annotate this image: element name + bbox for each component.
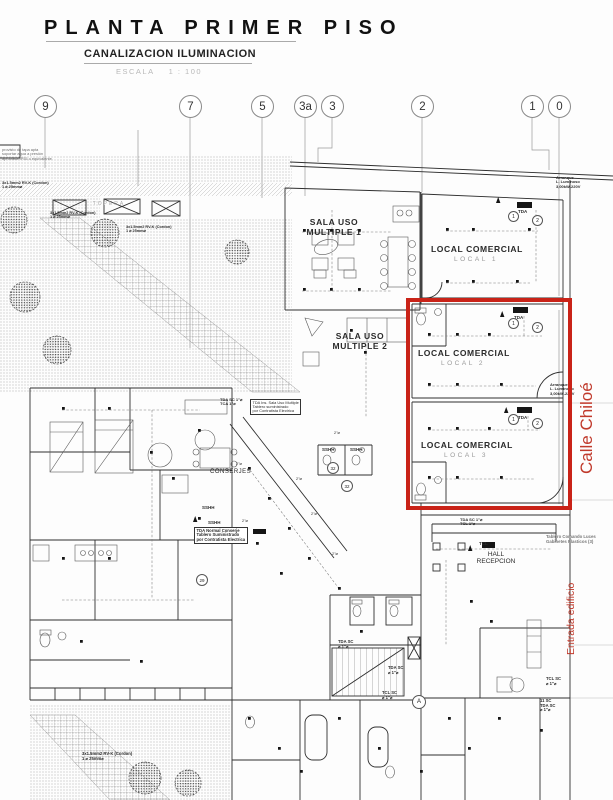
garden-hatch xyxy=(0,155,300,800)
annotation-tcl-sc-center: TCL SC ⌀ 1"⌀ xyxy=(382,691,397,700)
annotation-dia2-6: 2"⌀ xyxy=(332,552,338,556)
scale-ratio: 1 : 100 xyxy=(169,67,202,76)
room-label-sshh-1: SSHH xyxy=(202,505,215,510)
floor-plan-sheet: PLANTA PRIMER PISO CANALIZACION ILUMINAC… xyxy=(0,0,613,800)
subtitle-underline xyxy=(84,63,252,64)
scale-label: ESCALA xyxy=(116,67,155,76)
badge-32-b: 32 xyxy=(341,480,353,492)
annotation-tda-local1: TDA xyxy=(518,209,527,214)
sheet-subtitle: CANALIZACION ILUMINACION xyxy=(84,48,256,60)
annotation-cordon-1: 3x1.5mm2 RV-K (Cordon) 1 ⌀ 25mm⌀ xyxy=(50,211,96,220)
annotation-arranque-luminoso-top: Arranque L. Luminoso 3,00kW-220V xyxy=(556,176,580,189)
badge-circuit-1-local1: 1 xyxy=(508,211,519,222)
badge-section-a: A xyxy=(412,695,426,709)
annotation-cordon-3: 3x1.5mm2 RV-K (Cordon) 1 ⌀ 25mm⌀ xyxy=(82,752,132,761)
grid-bubble-3a: 3a xyxy=(294,95,317,118)
room-label-conserjes: CONSERJES xyxy=(210,469,251,476)
annotation-tda-sala-uso: TDA Ins. Sala Uso Multiple Tablero sumin… xyxy=(250,399,301,415)
title-underline xyxy=(46,41,296,42)
annotation-cordon-top: 3x1.5mm2 RV-K (Cordon) 1 ⌀ 25mm⌀ xyxy=(2,181,49,190)
grid-bubble-7: 7 xyxy=(179,95,202,118)
annotation-dia2-4: 2"⌀ xyxy=(334,431,340,435)
annotation-tablero-comando: Tablero Comando Luces Gabinetes Plastico… xyxy=(546,535,596,545)
badge-32-a: 32 xyxy=(327,462,339,474)
annotation-tda-sc-right: 11 SC TDA SC ⌀ 1"⌀ xyxy=(540,699,555,713)
label-topera: TOPERA xyxy=(88,202,130,208)
badge-29: 29 xyxy=(196,574,208,586)
annotation-caja-ip55: provisto de tapa apta soportar agua a pr… xyxy=(2,148,53,161)
annotation-dia2-1: 2"⌀ xyxy=(236,462,242,466)
room-label-sshh-2: SSHH xyxy=(208,520,221,525)
grid-bubble-1: 1 xyxy=(521,95,544,118)
annotation-tda-sc-tcl: TDA SC 1"⌀ TCL 1"⌀ xyxy=(460,518,482,527)
sheet-title: PLANTA PRIMER PISO xyxy=(44,17,404,40)
annotation-cordon-2: 3x1.5mm2 RV-K (Cordon) 1 ⌀ 25mm⌀ xyxy=(126,225,172,234)
grid-bubble-0: 0 xyxy=(548,95,571,118)
highlight-rectangle xyxy=(406,298,572,510)
annotation-tcl: TCL xyxy=(479,541,488,546)
room-label-sala-uso-multiple-2: SALA USO MULTIPLE 2 xyxy=(325,331,395,351)
grid-bubble-5: 5 xyxy=(251,95,274,118)
grid-bubble-3: 3 xyxy=(321,95,344,118)
annotation-dia2-2: 2"⌀ xyxy=(296,477,302,481)
room-label-local-comercial-1: LOCAL COMERCIAL LOCAL 1 xyxy=(431,244,521,263)
annotation-tda-sc-center: TDA SC ⌀ 1"⌀ xyxy=(388,666,403,675)
room-label-sala-uso-multiple-1: SALA USO MULTIPLE 1 xyxy=(294,217,374,237)
annotation-tcl-sc-right: TCL SC ⌀ 1"⌀ xyxy=(546,677,561,686)
annotation-tda-sc-stairs: TDA SC ⌀ 1"⌀ xyxy=(338,640,353,649)
grid-bubble-9: 9 xyxy=(34,95,57,118)
grid-bubble-2: 2 xyxy=(411,95,434,118)
annotation-tda-sc-tca: TDA SC 1"⌀ TCA 1"⌀ xyxy=(220,398,242,407)
annotation-dia2-3: 2"⌀ xyxy=(311,512,317,516)
room-label-hall-recepcion: HALL RECEPCION xyxy=(466,551,526,565)
annotation-tda-normal-conserje: TDA Normal Conserje Tablero Suministrado… xyxy=(194,527,248,544)
badge-circuit-2-local1: 2 xyxy=(532,215,543,226)
annotation-dia2-5: 2"⌀ xyxy=(242,519,248,523)
room-label-sshh-4: SSHH xyxy=(350,447,363,452)
street-label-calle-chiloe: Calle Chiloé xyxy=(578,356,595,474)
room-label-sshh-3: SSHH xyxy=(322,447,335,452)
street-label-entrada-edificio: Entrada edificio xyxy=(566,550,577,655)
scale-note: ESCALA 1 : 100 xyxy=(116,67,202,76)
